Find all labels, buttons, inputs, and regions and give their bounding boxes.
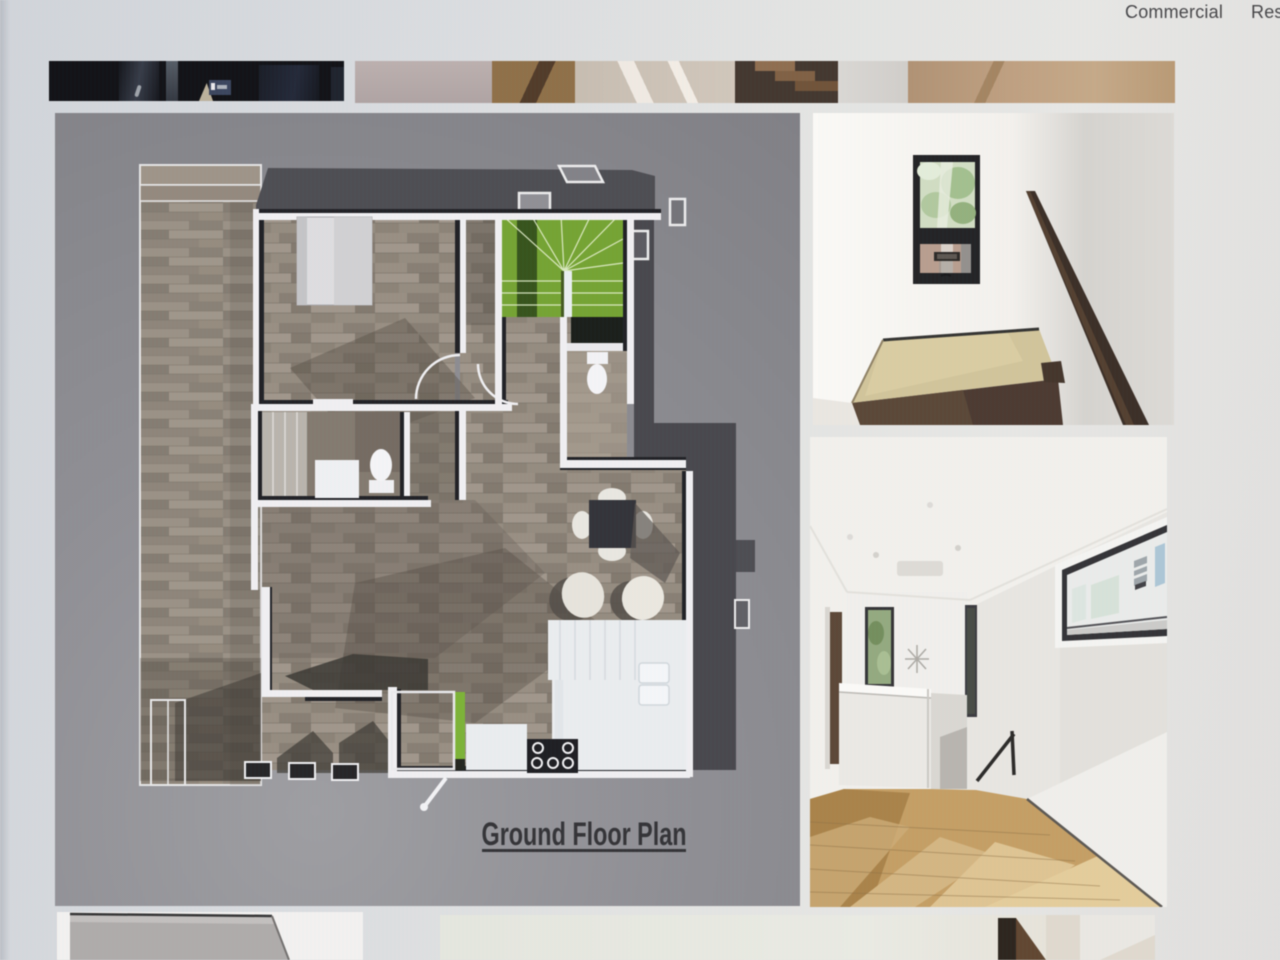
svg-text:Ground Floor Plan: Ground Floor Plan xyxy=(482,816,687,851)
